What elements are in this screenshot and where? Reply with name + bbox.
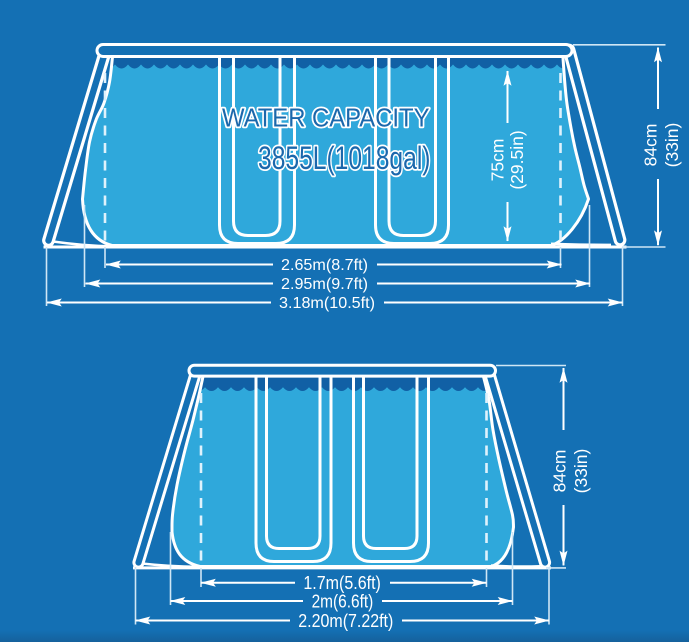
- svg-text:2.65m(8.7ft): 2.65m(8.7ft): [281, 257, 368, 274]
- svg-text:75cm: 75cm: [488, 139, 508, 182]
- svg-text:2.20m(7.22ft): 2.20m(7.22ft): [298, 611, 393, 631]
- svg-text:3855L(1018gal): 3855L(1018gal): [258, 140, 431, 176]
- svg-text:3.18m(10.5ft): 3.18m(10.5ft): [279, 295, 375, 312]
- svg-text:84cm: 84cm: [641, 124, 661, 167]
- svg-text:(29.5in): (29.5in): [507, 130, 527, 189]
- svg-text:(33in): (33in): [571, 449, 591, 494]
- svg-text:1.7m(5.6ft): 1.7m(5.6ft): [303, 573, 381, 593]
- svg-text:2m(6.6ft): 2m(6.6ft): [312, 592, 374, 612]
- svg-text:84cm: 84cm: [550, 450, 570, 493]
- svg-text:2.95m(9.7ft): 2.95m(9.7ft): [281, 276, 368, 293]
- svg-text:(33in): (33in): [662, 123, 682, 168]
- svg-text:WATER CAPACITY: WATER CAPACITY: [222, 105, 430, 133]
